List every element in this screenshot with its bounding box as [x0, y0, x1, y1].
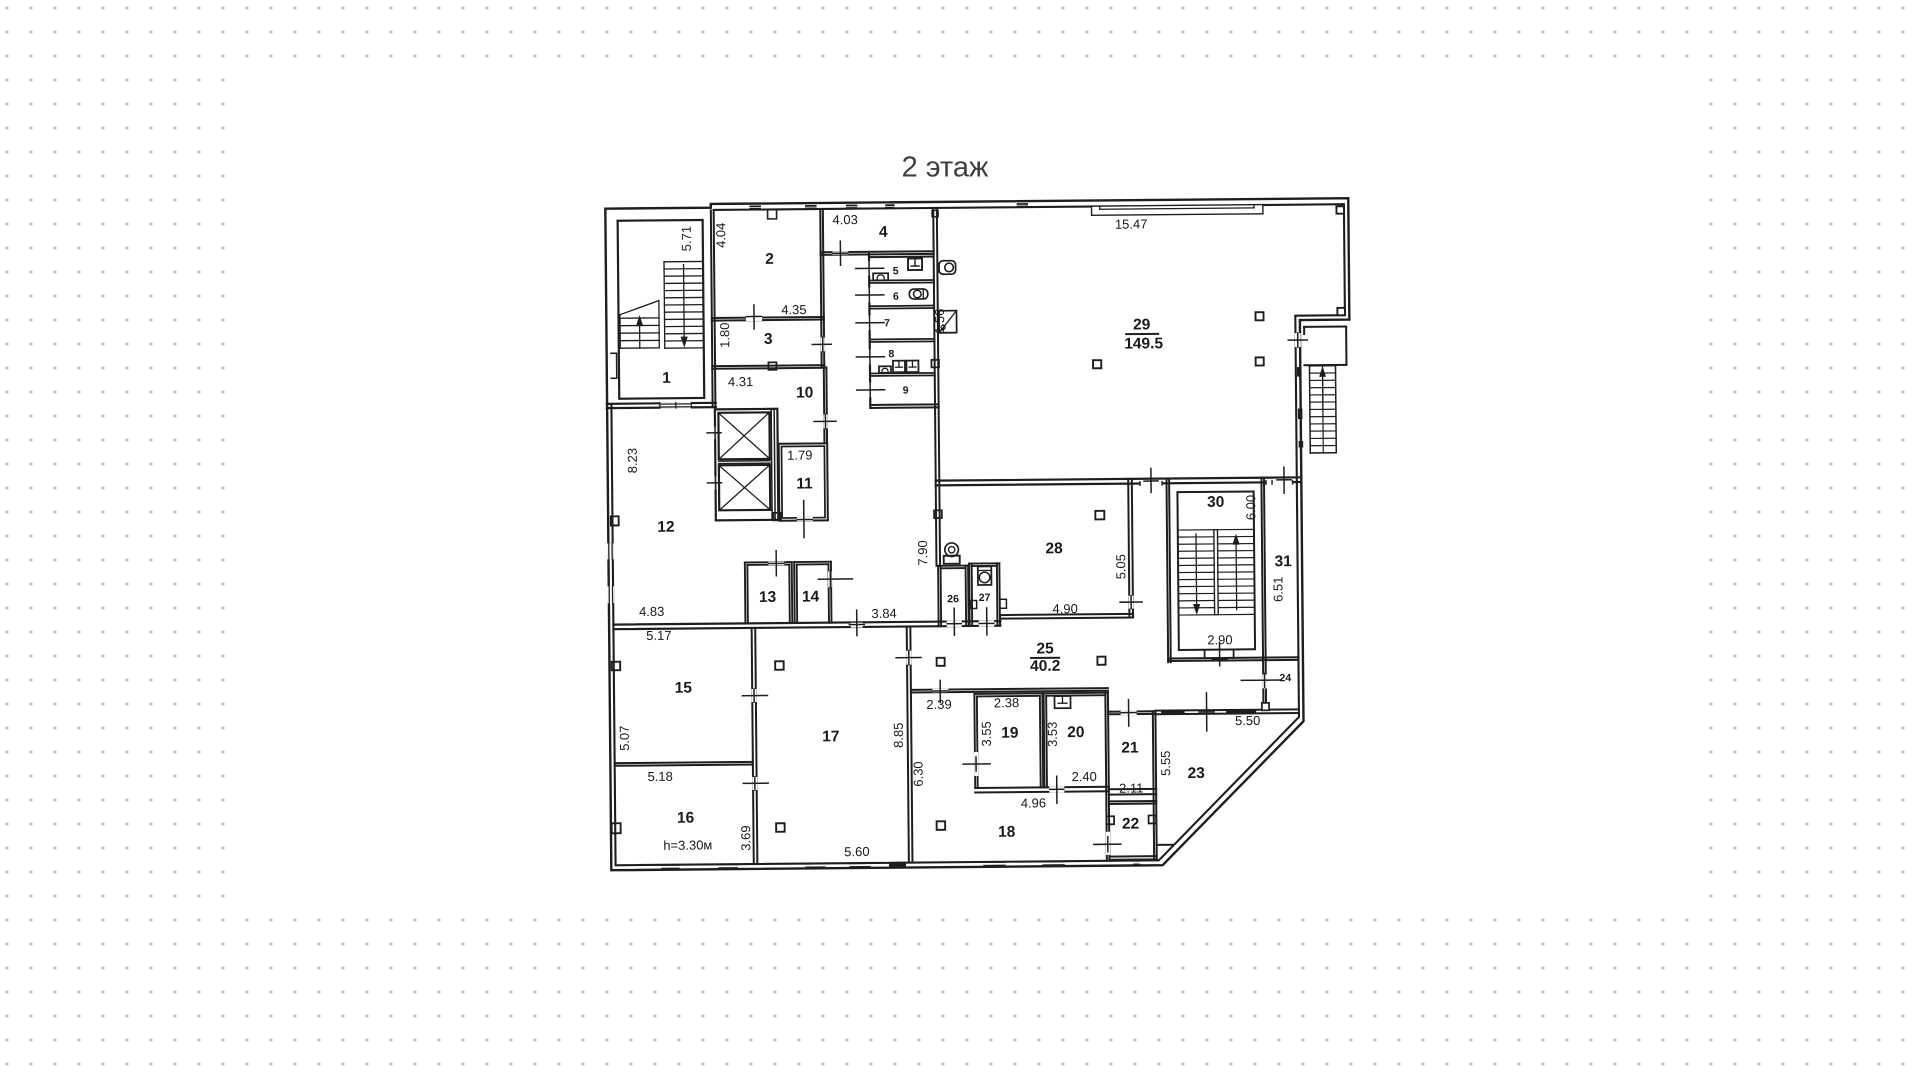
svg-text:26: 26	[947, 593, 959, 605]
svg-text:15.47: 15.47	[1115, 216, 1148, 231]
svg-text:6: 6	[893, 291, 899, 303]
svg-text:5.05: 5.05	[1113, 554, 1128, 579]
svg-text:13: 13	[759, 589, 777, 606]
svg-text:2: 2	[765, 251, 774, 268]
svg-text:1.80: 1.80	[717, 323, 732, 348]
svg-text:1: 1	[662, 370, 671, 387]
svg-text:3.69: 3.69	[738, 825, 753, 850]
svg-text:5.60: 5.60	[844, 844, 869, 859]
svg-text:5.55: 5.55	[1158, 751, 1173, 776]
svg-text:18: 18	[998, 824, 1016, 841]
svg-text:2.90: 2.90	[1207, 632, 1232, 647]
svg-text:21: 21	[1121, 740, 1139, 757]
svg-text:20: 20	[1067, 724, 1084, 741]
svg-text:22: 22	[1122, 816, 1139, 833]
svg-text:149.5: 149.5	[1124, 335, 1163, 352]
svg-text:29: 29	[1133, 316, 1151, 333]
svg-text:4.96: 4.96	[1021, 795, 1046, 810]
svg-text:24: 24	[1279, 672, 1291, 684]
svg-text:12: 12	[657, 519, 674, 536]
svg-text:1.56: 1.56	[932, 309, 947, 334]
svg-text:15: 15	[675, 680, 693, 697]
svg-text:11: 11	[796, 475, 813, 492]
svg-text:8: 8	[888, 348, 894, 360]
svg-text:40.2: 40.2	[1030, 658, 1060, 675]
svg-text:2.40: 2.40	[1071, 769, 1096, 784]
svg-text:1.79: 1.79	[787, 447, 812, 462]
svg-text:3.55: 3.55	[979, 721, 994, 746]
svg-text:4.90: 4.90	[1052, 601, 1077, 616]
svg-text:2.39: 2.39	[926, 697, 951, 712]
svg-text:2 этаж: 2 этаж	[902, 152, 989, 184]
svg-text:16: 16	[677, 810, 695, 827]
svg-text:6.00: 6.00	[1243, 495, 1258, 520]
svg-text:4.04: 4.04	[713, 223, 728, 248]
svg-text:14: 14	[802, 588, 820, 605]
svg-text:23: 23	[1187, 765, 1205, 782]
svg-text:5.07: 5.07	[617, 725, 632, 750]
svg-text:8.85: 8.85	[891, 722, 906, 747]
svg-text:3.84: 3.84	[871, 606, 896, 621]
svg-text:4.35: 4.35	[781, 302, 806, 317]
svg-text:28: 28	[1045, 540, 1063, 557]
svg-text:5.71: 5.71	[679, 226, 694, 251]
svg-text:6.51: 6.51	[1270, 577, 1285, 602]
svg-text:10: 10	[796, 384, 813, 401]
svg-text:31: 31	[1275, 553, 1293, 570]
svg-text:25: 25	[1036, 640, 1054, 657]
svg-text:9: 9	[903, 385, 909, 397]
svg-text:3: 3	[764, 331, 773, 348]
svg-text:6.30: 6.30	[911, 761, 926, 786]
svg-text:17: 17	[822, 728, 839, 745]
svg-text:7.90: 7.90	[915, 540, 930, 565]
svg-text:5: 5	[893, 265, 899, 277]
svg-text:2.38: 2.38	[994, 695, 1019, 710]
svg-text:30: 30	[1207, 494, 1224, 511]
svg-text:8.23: 8.23	[625, 448, 640, 473]
svg-text:19: 19	[1001, 725, 1019, 742]
svg-text:3.53: 3.53	[1045, 722, 1060, 747]
svg-text:7: 7	[884, 317, 890, 329]
svg-text:5.50: 5.50	[1235, 713, 1260, 728]
svg-text:5.17: 5.17	[646, 628, 671, 643]
svg-text:4.31: 4.31	[728, 374, 753, 389]
svg-text:h=3.30м: h=3.30м	[663, 837, 712, 852]
svg-text:27: 27	[979, 592, 991, 604]
svg-text:4.03: 4.03	[832, 212, 857, 227]
svg-text:4.83: 4.83	[639, 604, 664, 619]
svg-text:2.11: 2.11	[1119, 780, 1143, 795]
svg-text:5.18: 5.18	[647, 769, 672, 784]
svg-text:4: 4	[879, 224, 888, 241]
